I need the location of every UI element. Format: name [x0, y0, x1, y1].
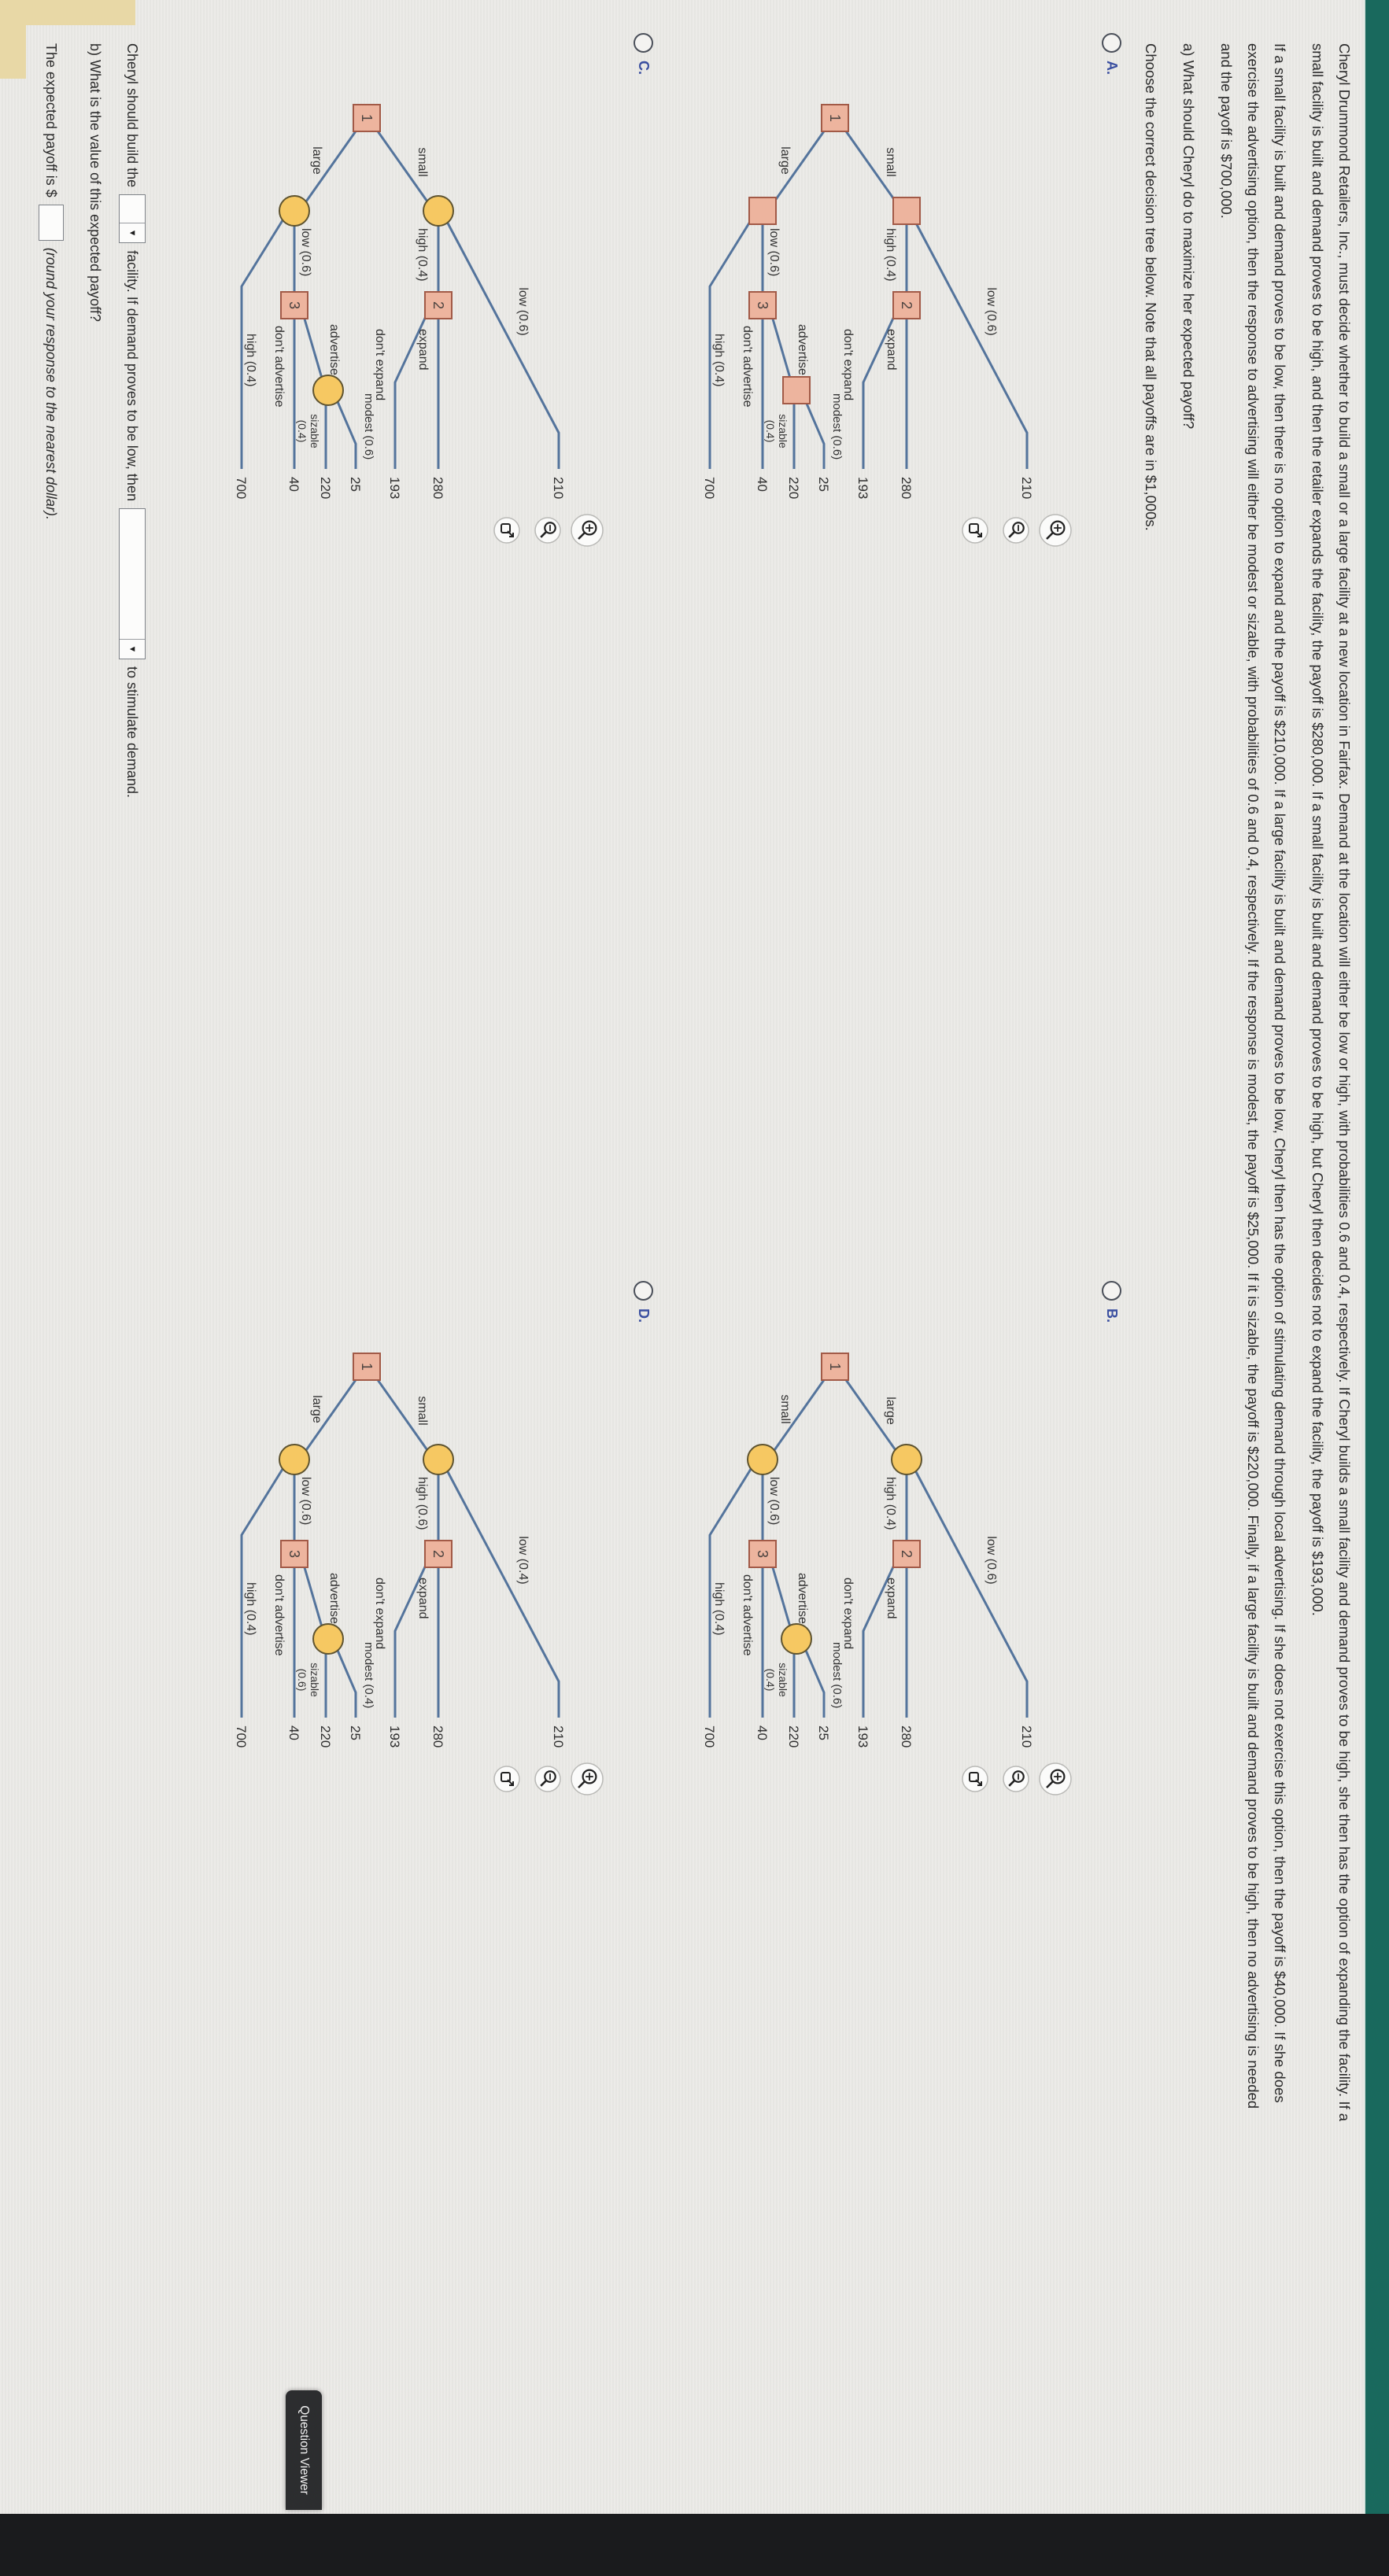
tree-branch-line — [769, 1378, 826, 1458]
leaf-value-193: 193 — [387, 1725, 402, 1747]
decision-node-number: 3 — [755, 301, 770, 309]
decision-tree-b: 123largesmalllow (0.6)high (0.4)expanddo… — [698, 1342, 1076, 1814]
option-d-letter: D. — [635, 1308, 652, 1323]
leaf-value-210: 210 — [1019, 477, 1034, 499]
icon-ring — [535, 1766, 560, 1792]
zoom-out-icon[interactable] — [535, 1766, 560, 1792]
part-a-prompt: a) What should Cheryl do to maximize her… — [1175, 43, 1202, 2502]
leaf-value-25: 25 — [348, 477, 363, 492]
branch-label-sizable-prob: (0.6) — [296, 1669, 308, 1692]
branch-label-dont-expand: don't expand — [373, 329, 386, 400]
payoff-input[interactable] — [39, 205, 64, 241]
decision-node — [749, 197, 776, 224]
question-viewer-tab[interactable]: Question Viewer — [286, 2390, 322, 2510]
icon-ring — [962, 518, 988, 543]
payoff-answer-row: The expected payoff is $ (round your res… — [39, 43, 64, 520]
top-teal-banner — [1364, 0, 1389, 2514]
open-graph-icon[interactable] — [494, 518, 519, 543]
branch-label-low-bottom: low (0.6) — [767, 1477, 781, 1525]
leaf-value-700: 700 — [234, 477, 249, 499]
leaf-value-220: 220 — [318, 477, 333, 499]
branch-label-modest: modest (0.4) — [362, 1642, 375, 1708]
option-c-radio-row: C. — [634, 33, 653, 75]
leaf-value-40: 40 — [286, 1725, 301, 1740]
option-a-letter: A. — [1103, 61, 1120, 75]
branch-label-low-bottom: low (0.6) — [767, 228, 781, 276]
radio-icon[interactable] — [1102, 33, 1121, 53]
rotated-screen: Cheryl Drummond Retailers, Inc., must de… — [0, 0, 1389, 2576]
screen-right-edge — [0, 2514, 1389, 2576]
decision-node — [783, 377, 810, 404]
leaf-value-210: 210 — [551, 1725, 566, 1747]
decision-node — [893, 197, 920, 224]
leaf-value-280: 280 — [430, 1725, 445, 1747]
decision-node-number: 3 — [286, 1550, 302, 1558]
branch-label-low-top: low (0.6) — [984, 1536, 998, 1584]
open-graph-icon[interactable] — [962, 518, 988, 543]
leaf-value-220: 220 — [786, 477, 801, 499]
tree-branch-line — [445, 1467, 559, 1718]
branch-label-sizable-prob: (0.4) — [764, 420, 777, 443]
branch-label-dont-advertise: don't advertise — [272, 1574, 286, 1656]
decision-node-number: 3 — [755, 1550, 770, 1558]
option-b-radio-row: B. — [1102, 1281, 1121, 1323]
icon-ring — [494, 518, 519, 543]
radio-icon[interactable] — [634, 33, 653, 53]
decision-tree-d: 123smalllargelow (0.4)high (0.6)expanddo… — [230, 1342, 608, 1814]
question-line: Cheryl Drummond Retailers, Inc., must de… — [1331, 43, 1358, 2502]
leaf-value-280: 280 — [430, 477, 445, 499]
decision-tree-a: 123smalllargelow (0.6)high (0.4)expanddo… — [698, 93, 1076, 565]
branch-label-top: small — [416, 147, 429, 176]
tree-branch-line — [336, 1647, 356, 1718]
tree-branch-line — [914, 1467, 1027, 1718]
question-line: and the payoff is $700,000. — [1213, 43, 1239, 2502]
branch-label-dont-advertise: don't advertise — [741, 1574, 754, 1656]
leaf-value-40: 40 — [286, 477, 301, 492]
option-c-letter: C. — [635, 61, 652, 75]
tree-branch-line — [304, 1565, 323, 1629]
branch-label-high-bottom: high (0.4) — [712, 1582, 726, 1636]
branch-label-bottom: large — [310, 146, 323, 175]
chance-node — [313, 1624, 343, 1654]
decision-tree-c: 123smalllargelow (0.6)high (0.4)expanddo… — [230, 93, 608, 565]
choose-tree-instruction: Choose the correct decision tree below. … — [1137, 43, 1164, 2502]
tree-branch-line — [804, 398, 824, 469]
question-viewer-label: Question Viewer — [297, 2405, 311, 2494]
decision-node-number: 2 — [430, 301, 446, 309]
branch-label-sizable: sizable — [308, 1663, 321, 1697]
tree-branch-line — [804, 1647, 824, 1718]
branch-label-top: small — [416, 1396, 429, 1425]
zoom-in-icon[interactable] — [571, 1763, 603, 1795]
part-b-row: b) What is the value of this expected pa… — [87, 43, 103, 322]
question-line: exercise the advertising option, then th… — [1239, 43, 1266, 2502]
decision-node-number: 2 — [899, 1550, 914, 1558]
leaf-value-700: 700 — [702, 477, 717, 499]
branch-label-dont-expand: don't expand — [841, 1578, 855, 1649]
branch-label-low-top: low (0.4) — [516, 1536, 530, 1584]
tree-branch-line — [301, 1378, 357, 1458]
branch-label-dont-expand: don't expand — [841, 329, 855, 400]
branch-label-modest: modest (0.6) — [830, 1642, 844, 1708]
branch-label-high-top: high (0.4) — [416, 228, 429, 282]
decision-tree-svg: 123smalllargelow (0.4)high (0.6)expanddo… — [230, 1342, 608, 1814]
branch-label-modest: modest (0.6) — [830, 393, 844, 459]
branch-label-advertise: advertise — [796, 324, 809, 375]
chance-node — [313, 375, 343, 405]
branch-label-bottom: large — [310, 1395, 323, 1423]
chance-node — [279, 1445, 309, 1474]
decision-tree-svg: 123smalllargelow (0.6)high (0.4)expanddo… — [698, 93, 1076, 565]
branch-label-sizable: sizable — [308, 414, 321, 448]
open-graph-icon[interactable] — [962, 1766, 988, 1792]
radio-icon[interactable] — [634, 1281, 653, 1301]
icon-ring — [571, 515, 603, 546]
build-sentence-mid: facility. If demand proves to be low, th… — [124, 250, 141, 501]
branch-label-dont-advertise: don't advertise — [272, 326, 286, 408]
leaf-value-40: 40 — [755, 1725, 770, 1740]
branch-label-high-bottom: high (0.4) — [244, 334, 257, 387]
branch-label-sizable-prob: (0.4) — [764, 1669, 777, 1692]
icon-ring — [1040, 1763, 1071, 1795]
tree-branch-line — [914, 219, 1027, 469]
leaf-value-40: 40 — [755, 477, 770, 492]
icon-ring — [494, 1766, 519, 1792]
leaf-value-210: 210 — [1019, 1725, 1034, 1747]
icon-ring — [1040, 515, 1071, 546]
chance-node — [748, 1445, 778, 1474]
branch-label-low-top: low (0.6) — [516, 287, 530, 335]
decision-tree-svg: 123largesmalllow (0.6)high (0.4)expanddo… — [698, 1342, 1076, 1814]
question-text: Cheryl Drummond Retailers, Inc., must de… — [1137, 43, 1358, 2502]
build-sentence-end: to stimulate demand. — [124, 666, 141, 798]
zoom-in-icon[interactable] — [571, 515, 603, 546]
leaf-value-280: 280 — [899, 477, 914, 499]
branch-label-high-top: high (0.6) — [416, 1477, 429, 1530]
decision-node-number: 3 — [286, 301, 302, 309]
branch-label-sizable: sizable — [777, 1663, 789, 1697]
branch-label-expand: expand — [885, 329, 898, 371]
tree-branch-line — [769, 129, 826, 209]
branch-label-advertise: advertise — [327, 324, 341, 375]
decision-node-number: 2 — [899, 301, 914, 309]
tree-branch-line — [772, 316, 791, 381]
zoom-in-icon[interactable] — [1040, 515, 1071, 546]
branch-label-high-bottom: high (0.4) — [244, 1582, 257, 1636]
mylab-question-page: Cheryl Drummond Retailers, Inc., must de… — [0, 0, 1389, 2576]
leaf-value-280: 280 — [899, 1725, 914, 1747]
leaf-value-700: 700 — [234, 1725, 249, 1747]
open-graph-icon[interactable] — [494, 1766, 519, 1792]
decision-tree-svg: 123smalllargelow (0.6)high (0.4)expanddo… — [230, 93, 608, 565]
branch-label-low-bottom: low (0.6) — [299, 1477, 312, 1525]
icon-ring — [1003, 518, 1029, 543]
tree-branch-line — [301, 129, 357, 209]
branch-label-expand: expand — [416, 329, 430, 371]
branch-label-advertise: advertise — [327, 1573, 341, 1624]
option-a-radio-row: A. — [1102, 33, 1121, 75]
icon-ring — [962, 1766, 988, 1792]
icon-ring — [1003, 1766, 1029, 1792]
facility-dropdown[interactable]: ▼ — [119, 194, 146, 243]
tree-branch-line — [304, 316, 323, 381]
leaf-value-700: 700 — [702, 1725, 717, 1747]
leaf-value-25: 25 — [816, 477, 831, 492]
branch-label-low-top: low (0.6) — [984, 287, 998, 335]
leaf-value-220: 220 — [786, 1725, 801, 1747]
branch-label-expand: expand — [885, 1578, 898, 1619]
branch-label-sizable-prob: (0.4) — [296, 420, 308, 443]
chance-node — [892, 1445, 922, 1474]
tree-branch-line — [445, 219, 559, 469]
radio-icon[interactable] — [1102, 1281, 1121, 1301]
branch-label-advertise: advertise — [796, 1573, 809, 1624]
leaf-value-220: 220 — [318, 1725, 333, 1747]
decision-node-number: 1 — [359, 1363, 375, 1371]
build-sentence-start: Cheryl should build the — [124, 43, 141, 187]
chance-node — [423, 196, 453, 226]
branch-label-high-top: high (0.4) — [884, 1477, 897, 1530]
branch-label-dont-advertise: don't advertise — [741, 326, 754, 408]
question-line: If a small facility is built and demand … — [1266, 43, 1293, 2502]
dropdown-caret-icon: ▼ — [120, 639, 145, 659]
branch-label-expand: expand — [416, 1578, 430, 1619]
desk-corner — [0, 0, 26, 79]
branch-label-bottom: small — [778, 1394, 792, 1423]
rounding-note: (round your response to the nearest doll… — [43, 248, 60, 520]
advertise-dropdown[interactable]: ▼ — [119, 508, 146, 659]
leaf-value-210: 210 — [551, 477, 566, 499]
tree-branch-line — [336, 398, 356, 469]
option-d-radio-row: D. — [634, 1281, 653, 1323]
decision-node-number: 1 — [827, 114, 843, 122]
branch-label-modest: modest (0.6) — [362, 393, 375, 459]
zoom-out-icon[interactable] — [535, 518, 560, 543]
leaf-value-193: 193 — [387, 477, 402, 499]
build-answer-row: Cheryl should build the ▼ facility. If d… — [119, 43, 146, 798]
icon-ring — [571, 1763, 603, 1795]
part-b-prompt: b) What is the value of this expected pa… — [87, 43, 103, 322]
leaf-value-25: 25 — [816, 1725, 831, 1740]
option-b-letter: B. — [1103, 1308, 1120, 1323]
branch-label-low-bottom: low (0.6) — [299, 228, 312, 276]
chance-node — [423, 1445, 453, 1474]
dropdown-caret-icon: ▼ — [120, 223, 145, 242]
branch-label-top: small — [884, 147, 897, 176]
decision-node-number: 1 — [359, 114, 375, 122]
zoom-out-icon[interactable] — [1003, 1766, 1029, 1792]
leaf-value-193: 193 — [855, 1725, 870, 1747]
branch-label-top: large — [884, 1397, 897, 1425]
chance-node — [781, 1624, 811, 1654]
branch-label-high-bottom: high (0.4) — [712, 334, 726, 387]
branch-label-dont-expand: don't expand — [373, 1578, 386, 1649]
branch-label-bottom: large — [778, 146, 792, 175]
leaf-value-193: 193 — [855, 477, 870, 499]
branch-label-high-top: high (0.4) — [884, 228, 897, 282]
decision-node-number: 2 — [430, 1550, 446, 1558]
zoom-out-icon[interactable] — [1003, 518, 1029, 543]
chance-node — [279, 196, 309, 226]
leaf-value-25: 25 — [348, 1725, 363, 1740]
zoom-in-icon[interactable] — [1040, 1763, 1071, 1795]
question-line: small facility is built and demand prove… — [1304, 43, 1331, 2502]
branch-label-sizable: sizable — [777, 414, 789, 448]
payoff-prefix: The expected payoff is $ — [43, 43, 60, 197]
icon-ring — [535, 518, 560, 543]
decision-node-number: 1 — [827, 1363, 843, 1371]
tree-branch-line — [772, 1565, 791, 1629]
